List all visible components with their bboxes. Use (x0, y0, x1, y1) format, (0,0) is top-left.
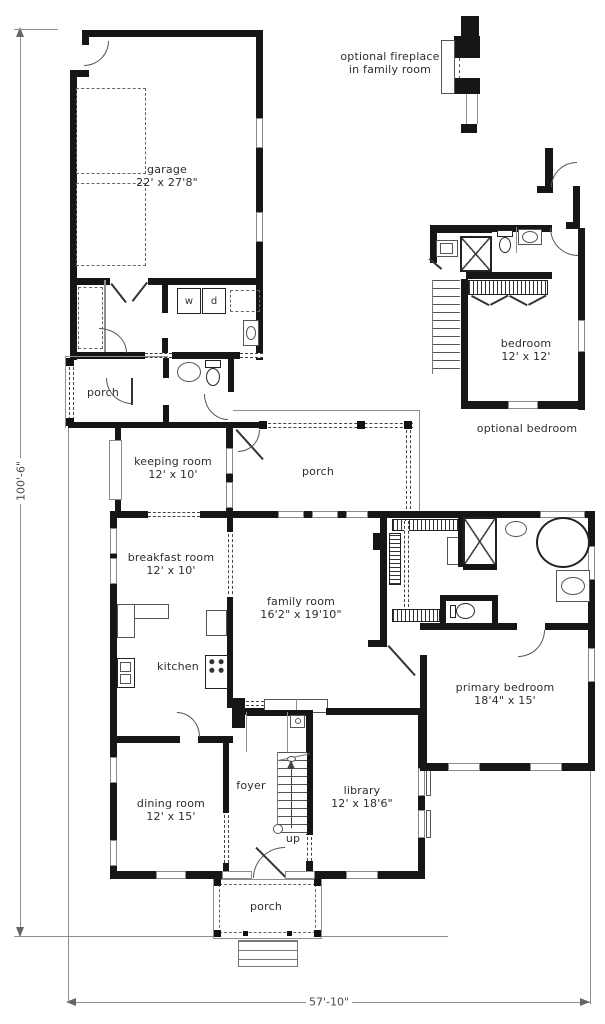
porch-roof-line (65, 356, 168, 357)
bifold-door (471, 295, 489, 306)
window (346, 511, 368, 518)
height-dimension-label: 100'-6" (15, 458, 28, 504)
door-arc (518, 630, 545, 657)
sink-bowl (120, 674, 131, 684)
room-size: 22' x 27'8" (136, 176, 198, 189)
door-leaf (131, 378, 133, 405)
wall (578, 228, 585, 410)
room-size: 12' x 10' (128, 564, 215, 577)
room-name: keeping room (134, 455, 212, 468)
closet-shelving (389, 533, 401, 585)
wall (537, 186, 553, 193)
window (110, 757, 117, 783)
porch-steps (238, 940, 298, 967)
window (418, 810, 425, 838)
foyer-label: foyer (236, 779, 265, 792)
kitchen-label: kitchen (157, 660, 199, 673)
wall (466, 272, 552, 279)
porch-rail-dashed (69, 362, 74, 420)
wall (463, 564, 497, 570)
sidelight (222, 871, 252, 879)
closet-rod-dashed (404, 521, 409, 607)
extension-line (14, 29, 58, 30)
door-leaf (388, 645, 416, 676)
stair-newel (273, 824, 283, 834)
dining-room-label: dining room 12' x 15' (137, 797, 205, 823)
wall (380, 511, 387, 643)
shower (463, 517, 497, 566)
stair-direction-line (291, 764, 292, 828)
wall (326, 708, 422, 715)
wall (198, 736, 233, 743)
fireplace-wall-foot (461, 124, 477, 133)
wall (306, 710, 313, 835)
laundry-sink-bowl (246, 326, 256, 340)
room-size: 18'4" x 15' (456, 694, 555, 707)
room-name: library (331, 784, 393, 797)
wall (420, 623, 517, 630)
window (346, 871, 378, 879)
porch-post (357, 421, 365, 429)
wall (82, 30, 263, 37)
porch-edge (321, 879, 322, 939)
garage-label: garage 22' x 27'8" (136, 163, 198, 189)
cased-opening (228, 534, 233, 594)
family-room-label: family room 16'2" x 19'10" (260, 595, 341, 621)
porch-center-label: porch (302, 465, 334, 478)
bath-divider-line (516, 227, 517, 253)
porch-rail-dashed (406, 430, 411, 514)
porch-roof-line (233, 410, 420, 411)
window-bay (109, 440, 122, 500)
porch-post (66, 358, 74, 366)
wall (228, 358, 234, 392)
fireplace-mass-upper (454, 36, 480, 58)
porch-post (404, 421, 412, 429)
note-text: optional bedroom (477, 422, 577, 435)
stair-arrow-up (287, 760, 295, 769)
room-name: primary bedroom (456, 681, 555, 694)
room-size: 16'2" x 19'10" (260, 608, 341, 621)
room-name: garage (136, 163, 198, 176)
water-heater-dot (295, 718, 301, 724)
door-arc (551, 162, 577, 187)
bifold-door (509, 295, 527, 306)
linen-closet-inner (440, 243, 453, 254)
cased-opening (246, 701, 264, 706)
wall (378, 871, 425, 879)
door-arc (177, 712, 200, 737)
door-arc (204, 394, 228, 420)
laundry-counter (230, 290, 260, 312)
bifold-door (528, 295, 546, 306)
closet-shelving (392, 609, 440, 622)
vanity-sink (505, 521, 527, 537)
window (110, 558, 117, 584)
bathtub (536, 517, 590, 568)
window (278, 511, 304, 518)
porch-post (214, 930, 221, 937)
sidelight (285, 871, 315, 879)
sink-bowl (120, 662, 131, 672)
wall (223, 743, 229, 813)
room-name: porch (302, 465, 334, 478)
porch-roof-line (419, 410, 420, 515)
extension-line (14, 936, 214, 937)
optional-bedroom-note: optional bedroom (477, 422, 577, 435)
room-size: 12' x 18'6" (331, 797, 393, 810)
room-name: family room (260, 595, 341, 608)
breakfast-room-label: breakfast room 12' x 10' (128, 551, 215, 577)
closet-shelving (468, 280, 548, 295)
garage-bay-outline (76, 183, 146, 266)
vanity-sink (561, 577, 585, 595)
window (588, 648, 595, 682)
wall (440, 595, 498, 601)
wall (461, 279, 468, 408)
extension-line (68, 428, 69, 1002)
door-arc (106, 378, 132, 404)
porch-edge (213, 879, 322, 880)
wall (440, 595, 446, 623)
staircase (432, 280, 460, 374)
cased-opening (307, 837, 312, 861)
window (226, 448, 233, 474)
room-size: 12' x 12' (501, 350, 552, 363)
door-leaf (132, 282, 148, 302)
room-name: breakfast room (128, 551, 215, 564)
cased-opening (224, 815, 229, 863)
window (226, 482, 233, 508)
cased-opening (148, 512, 200, 517)
wall (573, 186, 580, 227)
extension-line (590, 768, 591, 1004)
toilet-tank (497, 230, 513, 237)
porch-post (287, 931, 292, 936)
wall (227, 597, 233, 708)
room-size: 12' x 15' (137, 810, 205, 823)
closet-wall-line (246, 712, 247, 752)
window (418, 768, 425, 796)
door-leaf (110, 283, 126, 303)
wall (315, 871, 346, 879)
dimension-arrow-right (580, 998, 590, 1006)
wall (420, 655, 427, 770)
fireplace-wall-line (477, 94, 478, 124)
wall (68, 422, 234, 428)
library-label: library 12' x 18'6" (331, 784, 393, 810)
wall (162, 285, 168, 313)
porch-post (314, 930, 321, 937)
window (110, 840, 117, 866)
primary-bedroom-label: primary bedroom 18'4" x 15' (456, 681, 555, 707)
wall (163, 358, 169, 378)
wall (110, 736, 180, 743)
toilet-bowl (499, 237, 511, 253)
porch-post (243, 931, 248, 936)
porch-post (314, 879, 321, 886)
door-arc (99, 328, 127, 353)
fireplace-note-line1: optional fireplace (340, 50, 439, 63)
wall (227, 518, 233, 532)
optional-bedroom-room-label: bedroom 12' x 12' (501, 337, 552, 363)
wall (200, 511, 233, 518)
window (156, 871, 186, 879)
fireplace-dashed-edge (459, 58, 460, 78)
washer-label: w (185, 296, 193, 307)
window (530, 763, 562, 771)
up-text: up (286, 832, 300, 845)
wall (368, 640, 387, 647)
floor-plan-sheet: 100'-6" 57'-10" optional fireplace in fa… (0, 0, 605, 1024)
window (312, 511, 338, 518)
kitchen-counter (206, 610, 227, 636)
terrace-line (322, 936, 448, 937)
toilet-bowl (206, 368, 220, 386)
porch-bottom-label: porch (250, 900, 282, 913)
shutter (426, 810, 431, 838)
fireplace-note-line2: in family room (340, 63, 439, 76)
wall (373, 533, 381, 550)
door-arc (84, 41, 109, 66)
window (448, 763, 480, 771)
window (256, 212, 263, 242)
dryer-label: d (211, 296, 217, 307)
fireplace-hearth (441, 40, 455, 94)
wall (148, 278, 263, 285)
dryer: d (202, 288, 226, 314)
toilet-bowl (456, 603, 475, 619)
wall (234, 422, 262, 428)
fireplace-mass-lower (454, 78, 480, 94)
shutter (426, 768, 431, 796)
cased-opening (240, 353, 263, 358)
room-name: dining room (137, 797, 205, 810)
window (508, 401, 538, 409)
door-arc (238, 430, 260, 452)
wall (545, 623, 588, 630)
room-size: 12' x 10' (134, 468, 212, 481)
stove-burners (206, 656, 227, 682)
window (578, 320, 585, 352)
wall (110, 871, 156, 879)
bath-sink (522, 231, 538, 243)
chimney-mass (232, 698, 245, 728)
fireplace-note: optional fireplace in family room (340, 50, 439, 76)
garage-bay-outline (76, 88, 146, 174)
fireplace-wall-line (466, 94, 467, 124)
porch-post (214, 879, 221, 886)
washer: w (177, 288, 201, 314)
bifold-door (490, 295, 508, 306)
porch-rail-dashed (263, 423, 413, 428)
kitchen-counter (117, 604, 135, 638)
closet-shelving (392, 519, 462, 531)
door-arc (550, 228, 578, 256)
width-dimension-label: 57'-10" (306, 996, 352, 1009)
closet-wall-line (287, 712, 288, 752)
window (110, 528, 117, 554)
powder-sink (177, 362, 201, 382)
room-name: porch (250, 900, 282, 913)
keeping-room-label: keeping room 12' x 10' (134, 455, 212, 481)
room-name: foyer (236, 779, 265, 792)
fireplace-chimney-wall (461, 16, 479, 36)
wall (186, 871, 222, 879)
shower (460, 236, 492, 272)
toilet-tank (205, 360, 221, 368)
room-name: kitchen (157, 660, 199, 673)
room-name: bedroom (501, 337, 552, 350)
wall (430, 225, 492, 233)
window (256, 118, 263, 148)
up-label: up (286, 832, 300, 845)
wall (420, 763, 595, 771)
wall (492, 595, 498, 623)
porch-edge (213, 938, 322, 939)
